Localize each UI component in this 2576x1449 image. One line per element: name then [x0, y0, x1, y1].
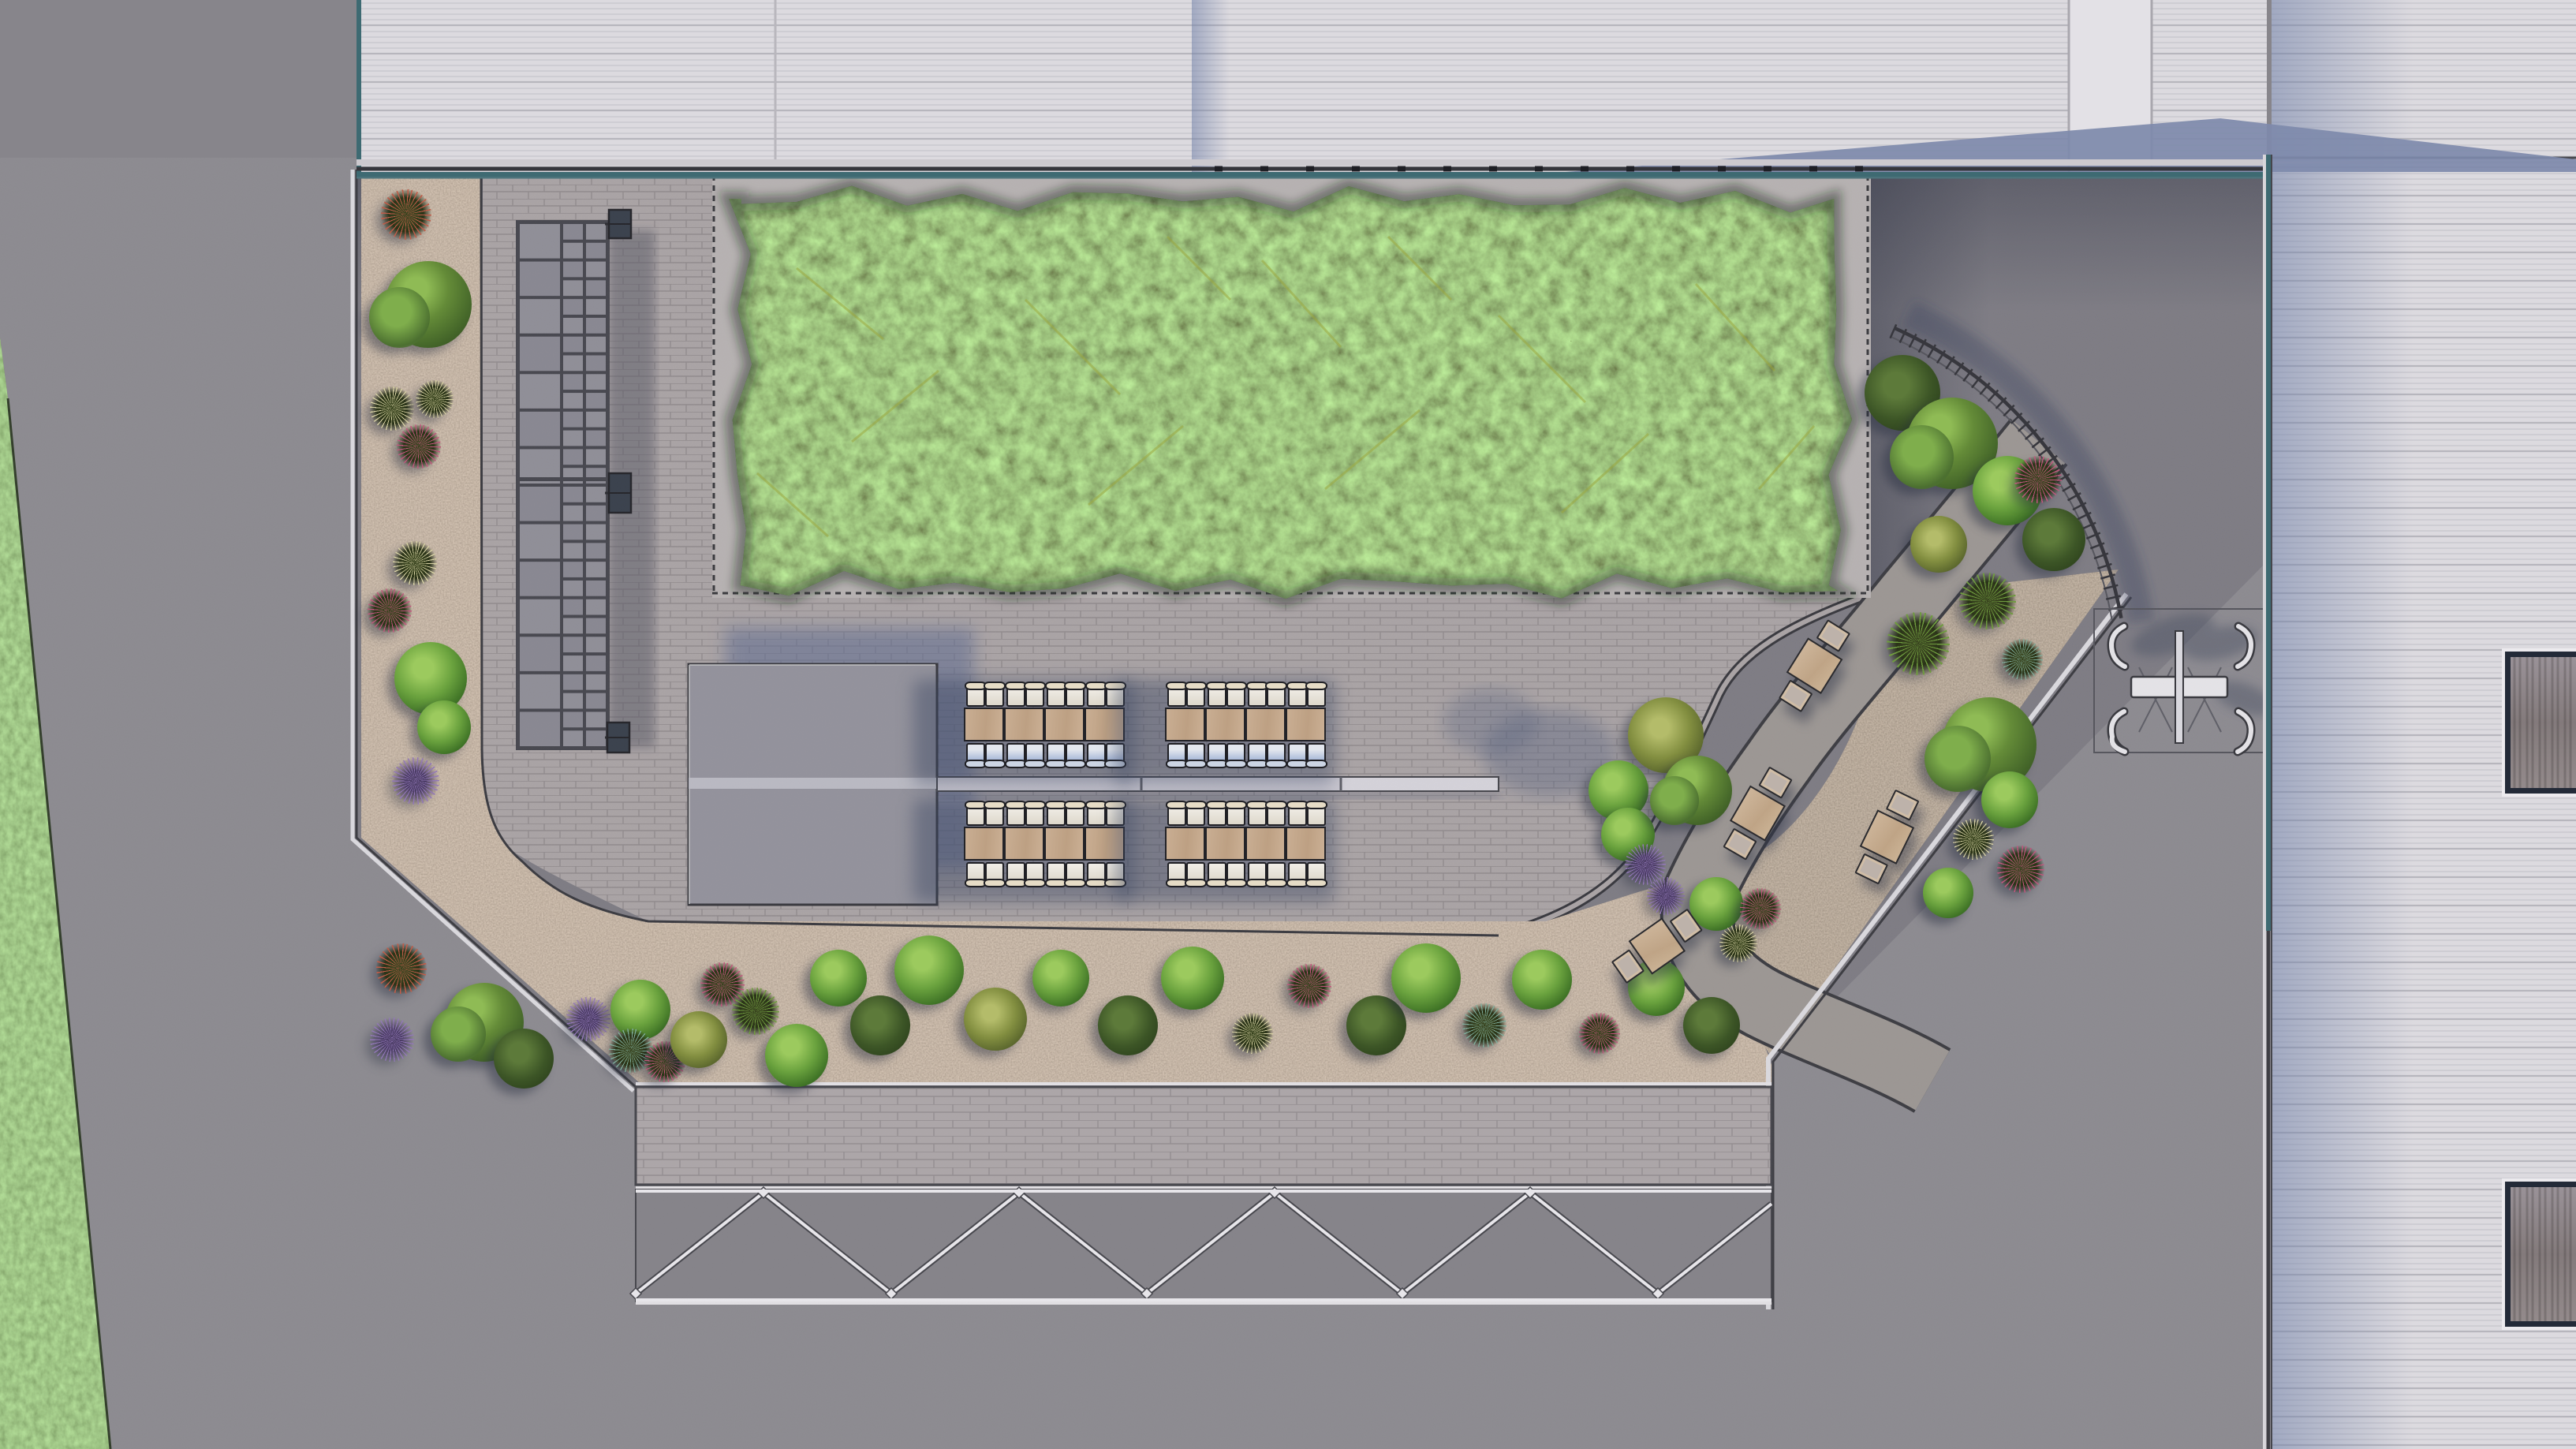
- parapet: [357, 162, 2267, 174]
- asphalt-grain-overlay: [0, 158, 2576, 1449]
- site-plan-render: [0, 0, 2576, 1449]
- skylight-window: [2502, 648, 2576, 797]
- skylight-window: [2502, 1178, 2576, 1330]
- building-right: [2272, 0, 2576, 1449]
- building-top-left: [357, 0, 1192, 172]
